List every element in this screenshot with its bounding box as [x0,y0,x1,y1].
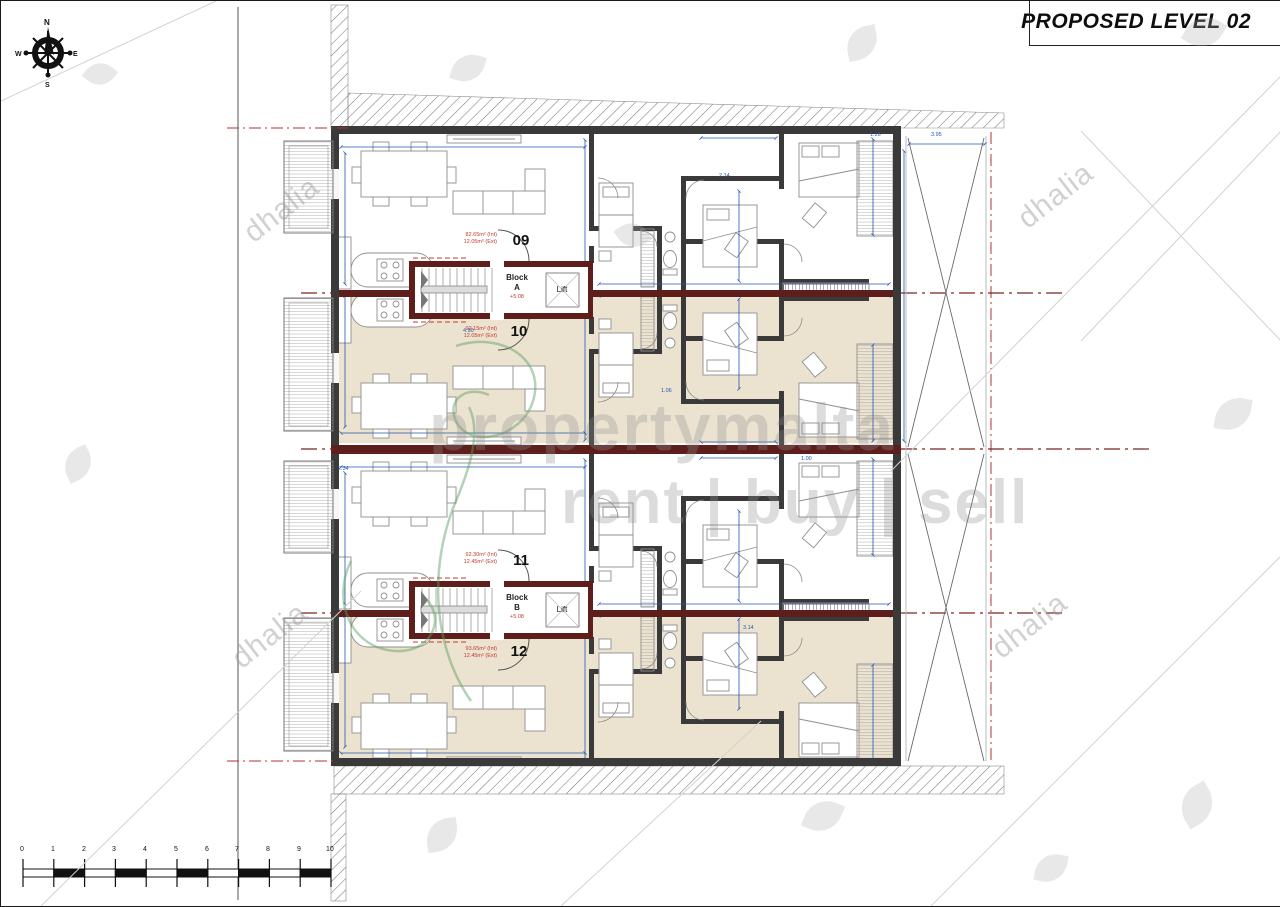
scale-label: 9 [297,846,301,853]
neighbour-wall-hatch-top-left [331,5,348,129]
scale-label: 1 [51,846,55,853]
dimension-label: 3.95 [931,132,942,138]
dimension-label: 3.14 [743,625,754,631]
unit-12-area-ext: 12.45m² (Ext) [439,653,497,660]
unit-09-areas: 82.65m² (Int) 12.05m² (Ext) [439,232,497,245]
dimension-label: 2.34 [338,466,349,472]
compass-west-label: W [15,51,22,58]
unit-09-area-ext: 12.05m² (Ext) [439,239,497,246]
block-a [284,126,901,446]
scale-label: 10 [326,846,334,853]
scale-label: 2 [82,846,86,853]
bottom-facade-wall [331,758,901,766]
title-divider-vertical [1029,1,1030,45]
scale-label: 7 [235,846,239,853]
dimension-label: 1.06 [661,388,672,394]
block-b-lift-label: Lift [557,605,568,614]
block-b [284,446,901,766]
block-separation-wall [331,445,901,454]
dimension-label: 1.00 [801,456,812,462]
dimension-label: 4.90 [463,328,474,334]
unit-11-number: 11 [513,552,529,569]
compass-east-label: E [73,51,78,58]
unit-12-areas: 93.65m² (Int) 12.45m² (Ext) [439,646,497,659]
unit-10-number: 10 [511,323,528,340]
unit-11-areas: 92.30m² (Int) 12.45m² (Ext) [439,552,497,565]
scale-label: 0 [20,846,24,853]
title-divider [1029,45,1280,46]
neighbour-wall-hatch-top [348,93,1004,128]
dimension-label: 1.26 [870,132,881,138]
unit-09-number: 09 [513,232,530,249]
scale-label: 4 [143,846,147,853]
scale-label: 3 [112,846,116,853]
scale-label: 8 [266,846,270,853]
block-a-lift-label: Lift [557,285,568,294]
block-b-label: Block [506,593,528,602]
scale-label: 6 [205,846,209,853]
unit-11-area-ext: 12.45m² (Ext) [439,559,497,566]
unit-12-number: 12 [511,643,528,660]
page-title: PROPOSED LEVEL 02 [1021,10,1251,34]
block-a-label: Block [506,273,528,282]
block-a-level: +5.08 [510,294,524,300]
block-b-letter: B [514,603,520,612]
dimension-label: 2.14 [719,173,730,179]
scale-label: 5 [174,846,178,853]
drawing-sheet: N E S W PROPOSED LEVEL 02 [0,0,1280,907]
block-b-level: +5.08 [510,614,524,620]
floor-plan-svg: N E S W [1,1,1280,906]
block-a-letter: A [514,283,520,292]
scale-bar [23,859,331,887]
compass-rose-icon: N E S W [15,18,78,89]
compass-south-label: S [45,82,50,89]
neighbour-wall-hatch-bottom [334,766,1004,794]
compass-north-label: N [44,18,50,27]
